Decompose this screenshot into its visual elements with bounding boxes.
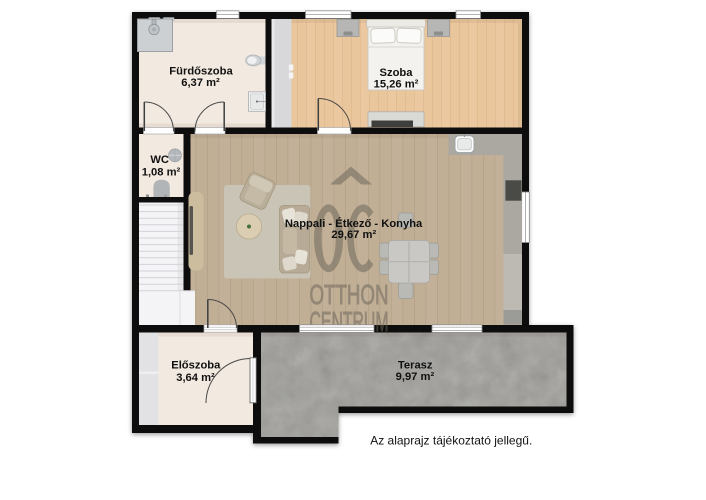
svg-text:1,08 m²: 1,08 m²: [142, 167, 181, 179]
svg-text:Fürdőszoba: Fürdőszoba: [169, 66, 233, 78]
svg-text:Az alaprajz tájékoztató jelleg: Az alaprajz tájékoztató jellegű.: [370, 434, 532, 448]
svg-text:Előszoba: Előszoba: [171, 360, 221, 372]
svg-text:WC: WC: [150, 154, 169, 166]
svg-text:29,67 m²: 29,67 m²: [331, 229, 376, 241]
svg-text:Terasz: Terasz: [398, 360, 433, 372]
svg-text:15,26 m²: 15,26 m²: [374, 79, 419, 91]
svg-text:Szoba: Szoba: [380, 67, 414, 79]
svg-text:9,97 m²: 9,97 m²: [396, 371, 435, 383]
svg-text:3,64 m²: 3,64 m²: [176, 372, 215, 384]
svg-text:6,37 m²: 6,37 m²: [181, 77, 220, 89]
